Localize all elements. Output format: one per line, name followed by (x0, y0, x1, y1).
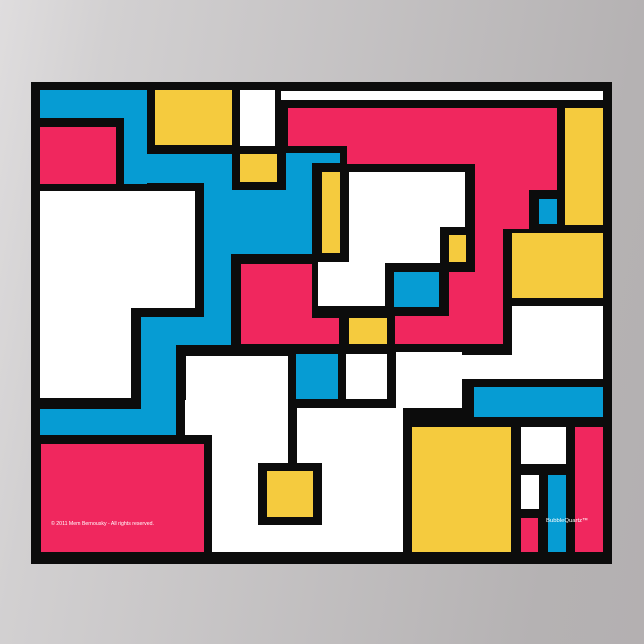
svg-text:BubbleQuartz™: BubbleQuartz™ (546, 518, 588, 524)
svg-text:© 2011 Mem Bernousky - All rig: © 2011 Mem Bernousky - All rights reserv… (51, 520, 154, 527)
